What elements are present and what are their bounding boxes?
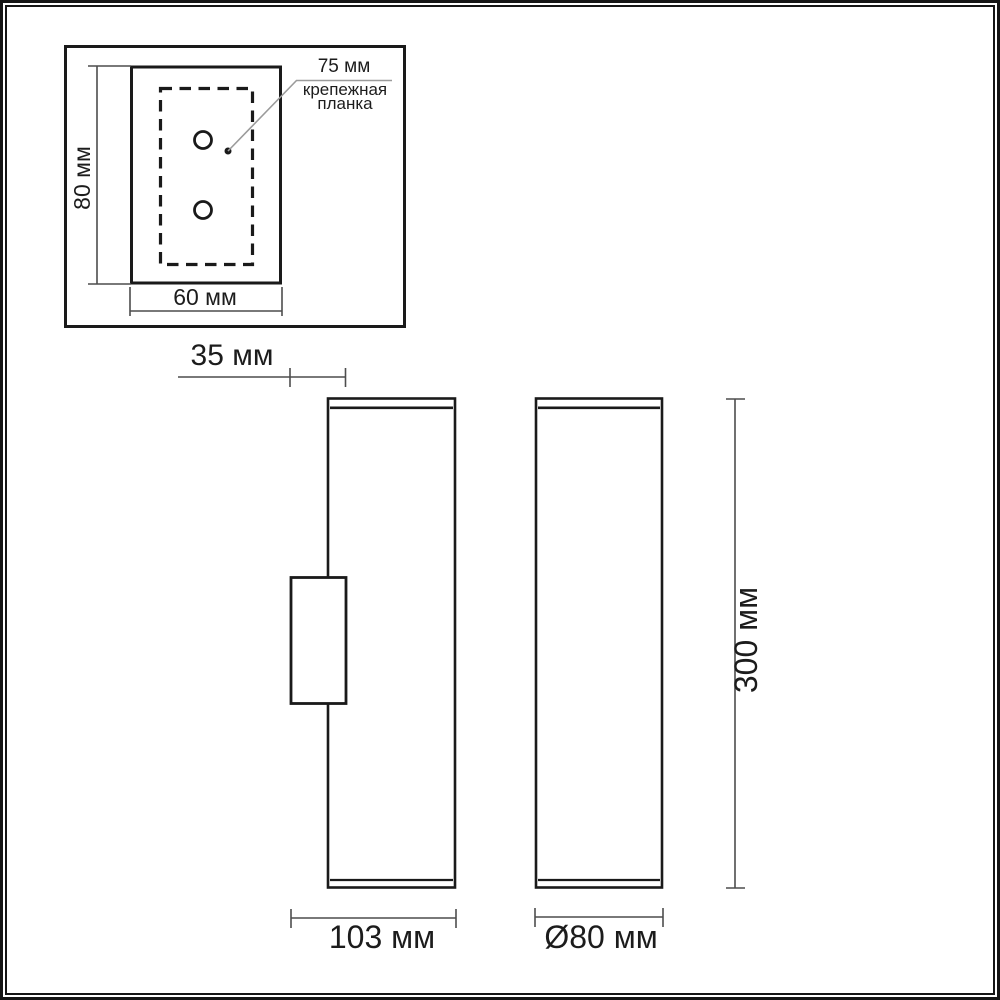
front-view xyxy=(535,399,745,928)
total-depth-label: 103 мм xyxy=(302,920,462,955)
side-view xyxy=(178,368,456,928)
technical-drawing xyxy=(0,0,1000,1000)
hole-spacing-label: 75 мм xyxy=(296,57,392,78)
mounting-hole-top xyxy=(195,132,212,149)
mounting-plate-outline xyxy=(132,67,281,283)
bracket-depth-label: 35 мм xyxy=(162,339,302,372)
wall-mount-bracket xyxy=(291,578,346,704)
mounting-plate-note: крепежная планка xyxy=(287,83,403,111)
plate-width-label: 60 мм xyxy=(145,285,265,310)
diameter-label: Ø80 мм xyxy=(519,920,683,955)
body-height-label: 300 мм xyxy=(725,560,769,720)
mounting-hole-bottom xyxy=(195,202,212,219)
plate-height-label: 80 мм xyxy=(69,131,97,225)
mounting-plate-note-line2: планка xyxy=(287,97,403,111)
front-view-body xyxy=(536,399,662,888)
drawing-page: 80 мм 60 мм 75 мм крепежная планка 35 мм… xyxy=(0,0,1000,1000)
